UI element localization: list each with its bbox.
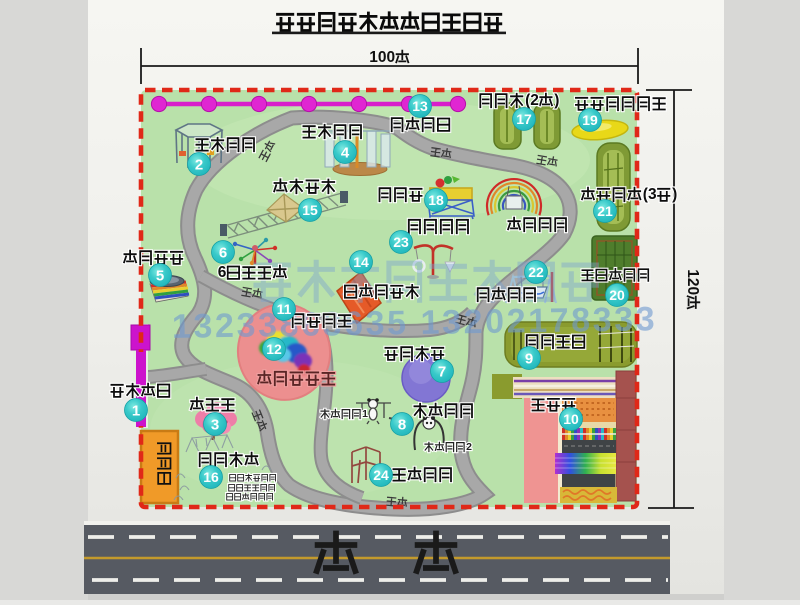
svg-text:7: 7 [438,363,446,380]
svg-text:12: 12 [266,341,282,357]
svg-text:): ) [672,186,677,203]
svg-text:18: 18 [428,192,444,208]
svg-text:2: 2 [195,156,203,173]
svg-text:(3: (3 [643,186,657,203]
svg-text:3: 3 [211,416,219,433]
svg-text:19: 19 [582,112,598,128]
svg-text:16: 16 [203,469,219,485]
svg-text:17: 17 [516,111,532,127]
svg-text:100: 100 [369,49,395,66]
svg-text:): ) [554,92,559,109]
svg-text:13: 13 [412,98,428,114]
svg-text:(2: (2 [525,92,539,109]
svg-text:2: 2 [466,441,472,453]
svg-text:15: 15 [302,202,318,218]
svg-text:10: 10 [563,411,579,427]
svg-text:1: 1 [132,402,140,419]
svg-text:8: 8 [398,416,406,433]
svg-text:22: 22 [528,264,544,280]
svg-text:5: 5 [156,267,164,284]
svg-text:9: 9 [525,350,533,367]
svg-text:21: 21 [597,203,613,219]
svg-text:120: 120 [684,269,701,295]
svg-text:4: 4 [341,144,350,161]
svg-text:14: 14 [353,254,369,270]
svg-text:20: 20 [609,287,625,303]
svg-text:23: 23 [393,234,409,250]
svg-text:24: 24 [373,467,389,483]
svg-text:1: 1 [362,408,368,420]
svg-text:6: 6 [218,264,227,281]
svg-text:6: 6 [219,244,227,261]
svg-text:11: 11 [277,301,292,317]
